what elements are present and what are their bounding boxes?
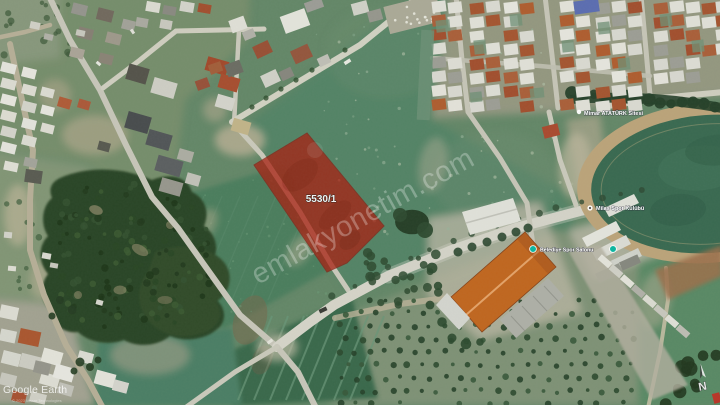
svg-text:Belediye Spor Salonu: Belediye Spor Salonu bbox=[540, 248, 593, 254]
svg-text:Google Earth: Google Earth bbox=[3, 384, 67, 396]
svg-text:© 2023 Maxar Technologies: © 2023 Maxar Technologies bbox=[12, 398, 62, 403]
svg-text:Mimar ATATÜRK Sitesi: Mimar ATATÜRK Sitesi bbox=[584, 110, 644, 117]
svg-text:Milas Spor Kulübü: Milas Spor Kulübü bbox=[596, 206, 644, 212]
